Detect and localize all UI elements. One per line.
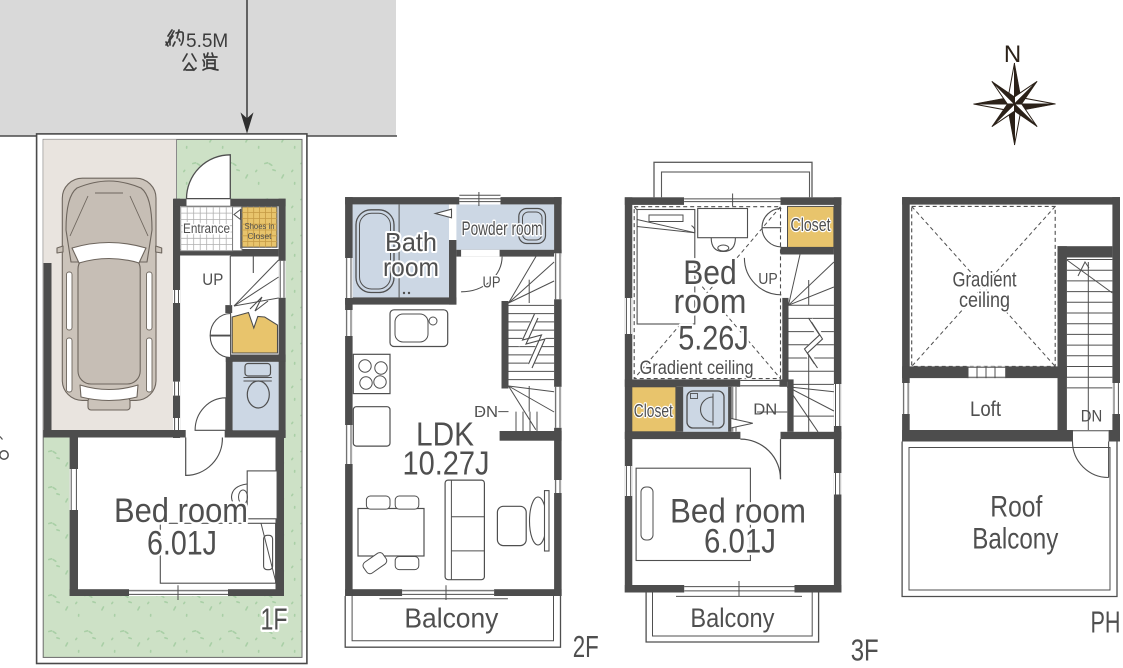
svg-text:Closet: Closet — [791, 215, 831, 235]
svg-text:room: room — [383, 252, 439, 282]
svg-text:5.5M: 5.5M — [186, 31, 228, 52]
svg-text:N: N — [1004, 41, 1021, 68]
svg-text:Gradient: Gradient — [953, 268, 1017, 291]
svg-text:ceiling: ceiling — [959, 289, 1010, 312]
svg-text:UP: UP — [202, 270, 223, 289]
svg-text:Closet: Closet — [248, 231, 273, 241]
svg-text:Balcony: Balcony — [690, 603, 774, 633]
svg-text:Gradient ceiling: Gradient ceiling — [640, 358, 754, 379]
svg-text:Shoes in: Shoes in — [245, 221, 275, 231]
svg-text:DN: DN — [753, 402, 777, 419]
svg-text:6.01J: 6.01J — [704, 522, 776, 560]
svg-text:Entrance: Entrance — [183, 221, 230, 236]
svg-text:UP: UP — [483, 275, 501, 292]
svg-text:5.26J: 5.26J — [678, 320, 749, 358]
svg-text:room: room — [674, 283, 747, 321]
svg-text:1F: 1F — [261, 602, 288, 637]
svg-text:Roof: Roof — [990, 490, 1043, 523]
svg-text:Balcony: Balcony — [404, 603, 498, 634]
svg-text:Closet: Closet — [634, 401, 673, 421]
svg-text:6.01J: 6.01J — [147, 525, 217, 563]
svg-text:Loft: Loft — [970, 398, 1001, 421]
svg-text:2F: 2F — [573, 629, 599, 664]
svg-text:Powder room: Powder room — [462, 219, 543, 240]
svg-text:3F: 3F — [851, 633, 879, 668]
svg-text:Balcony: Balcony — [972, 522, 1058, 555]
svg-text:DN: DN — [474, 404, 498, 421]
svg-text:10.27J: 10.27J — [403, 445, 490, 482]
svg-text:UP: UP — [758, 271, 778, 288]
svg-text:PH: PH — [1091, 605, 1121, 640]
svg-text:DN: DN — [1081, 407, 1103, 426]
